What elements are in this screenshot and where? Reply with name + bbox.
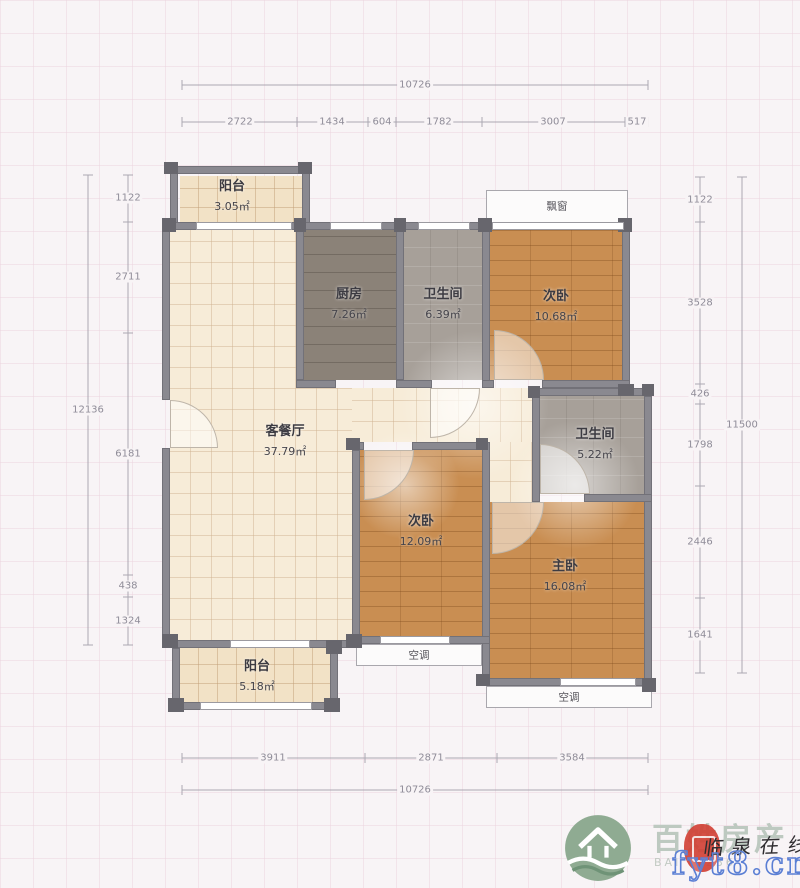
room-area: 3.05㎡ (214, 201, 250, 212)
room-label-bathroom-1: 卫生间 6.39㎡ (423, 288, 462, 320)
dim-top-seg-5: 3007 (538, 117, 567, 128)
dim-left-seg-2: 2711 (113, 272, 142, 283)
room-area: 6.39㎡ (423, 309, 462, 320)
dim-right-seg-4: 1798 (685, 440, 714, 451)
house-wave-icon (564, 814, 632, 882)
room-name: 阳台 (219, 179, 245, 194)
dim-right-seg-3: 426 (688, 389, 711, 400)
room-name: 客餐厅 (265, 424, 304, 439)
dim-right-total: 11500 (724, 420, 760, 431)
dim-right-seg-1: 1122 (685, 195, 714, 206)
room-name: 厨房 (336, 287, 362, 302)
dim-left-total: 12136 (70, 405, 106, 416)
ac-label-right: 空调 (559, 690, 580, 705)
room-name: 次卧 (543, 289, 569, 304)
dim-bottom-seg-3: 3584 (557, 753, 586, 764)
room-area: 37.79㎡ (264, 446, 307, 457)
dim-left-seg-1: 1122 (113, 193, 142, 204)
room-name: 阳台 (244, 659, 270, 674)
dim-right-seg-2: 3528 (685, 298, 714, 309)
room-name: 卫生间 (423, 287, 462, 302)
dim-top-seg-6: 517 (625, 117, 648, 128)
dim-top-seg-1: 2722 (225, 117, 254, 128)
dim-left-seg-3: 6181 (113, 449, 142, 460)
room-area: 5.22㎡ (575, 449, 614, 460)
room-area: 10.68㎡ (535, 311, 578, 322)
room-label-balcony-bottom: 阳台 5.18㎡ (239, 660, 275, 692)
dim-bottom-total: 10726 (397, 785, 433, 796)
dim-right-seg-6: 1641 (685, 630, 714, 641)
room-name: 卫生间 (575, 427, 614, 442)
room-label-master-bedroom: 主卧 16.08㎡ (544, 560, 587, 592)
floor-plan-canvas: 10726 2722 1434 604 1782 3007 517 3911 2… (0, 0, 800, 888)
room-label-balcony-top: 阳台 3.05㎡ (214, 180, 250, 212)
dim-top-total: 10726 (397, 80, 433, 91)
room-name: 主卧 (552, 559, 578, 574)
dim-bottom-seg-2: 2871 (416, 753, 445, 764)
room-name: 次卧 (408, 514, 434, 529)
dim-left-seg-5: 1324 (113, 616, 142, 627)
room-area: 7.26㎡ (331, 309, 367, 320)
room-area: 16.08㎡ (544, 581, 587, 592)
room-label-bathroom-2: 卫生间 5.22㎡ (575, 428, 614, 460)
dim-top-seg-4: 1782 (424, 117, 453, 128)
brand-logo (564, 814, 632, 882)
dim-top-seg-3: 604 (370, 117, 393, 128)
dim-top-seg-2: 1434 (317, 117, 346, 128)
overlay-url: fyt8.cn (672, 846, 800, 882)
room-area: 5.18㎡ (239, 681, 275, 692)
room-area: 12.09㎡ (400, 536, 443, 547)
ac-label-left: 空调 (409, 648, 430, 663)
watermark: 百姓房产 BAI 236 临泉在线 fyt8.cn (556, 808, 800, 888)
dim-bottom-seg-1: 3911 (258, 753, 287, 764)
room-label-bedroom-top: 次卧 10.68㎡ (535, 290, 578, 322)
dim-right-seg-5: 2446 (685, 537, 714, 548)
room-label-bedroom-mid: 次卧 12.09㎡ (400, 515, 443, 547)
dimension-lines (0, 0, 800, 888)
dim-left-seg-4: 438 (116, 581, 139, 592)
bay-window-label: 飘窗 (547, 199, 568, 214)
room-label-living-dining: 客餐厅 37.79㎡ (264, 425, 307, 457)
room-label-kitchen: 厨房 7.26㎡ (331, 288, 367, 320)
